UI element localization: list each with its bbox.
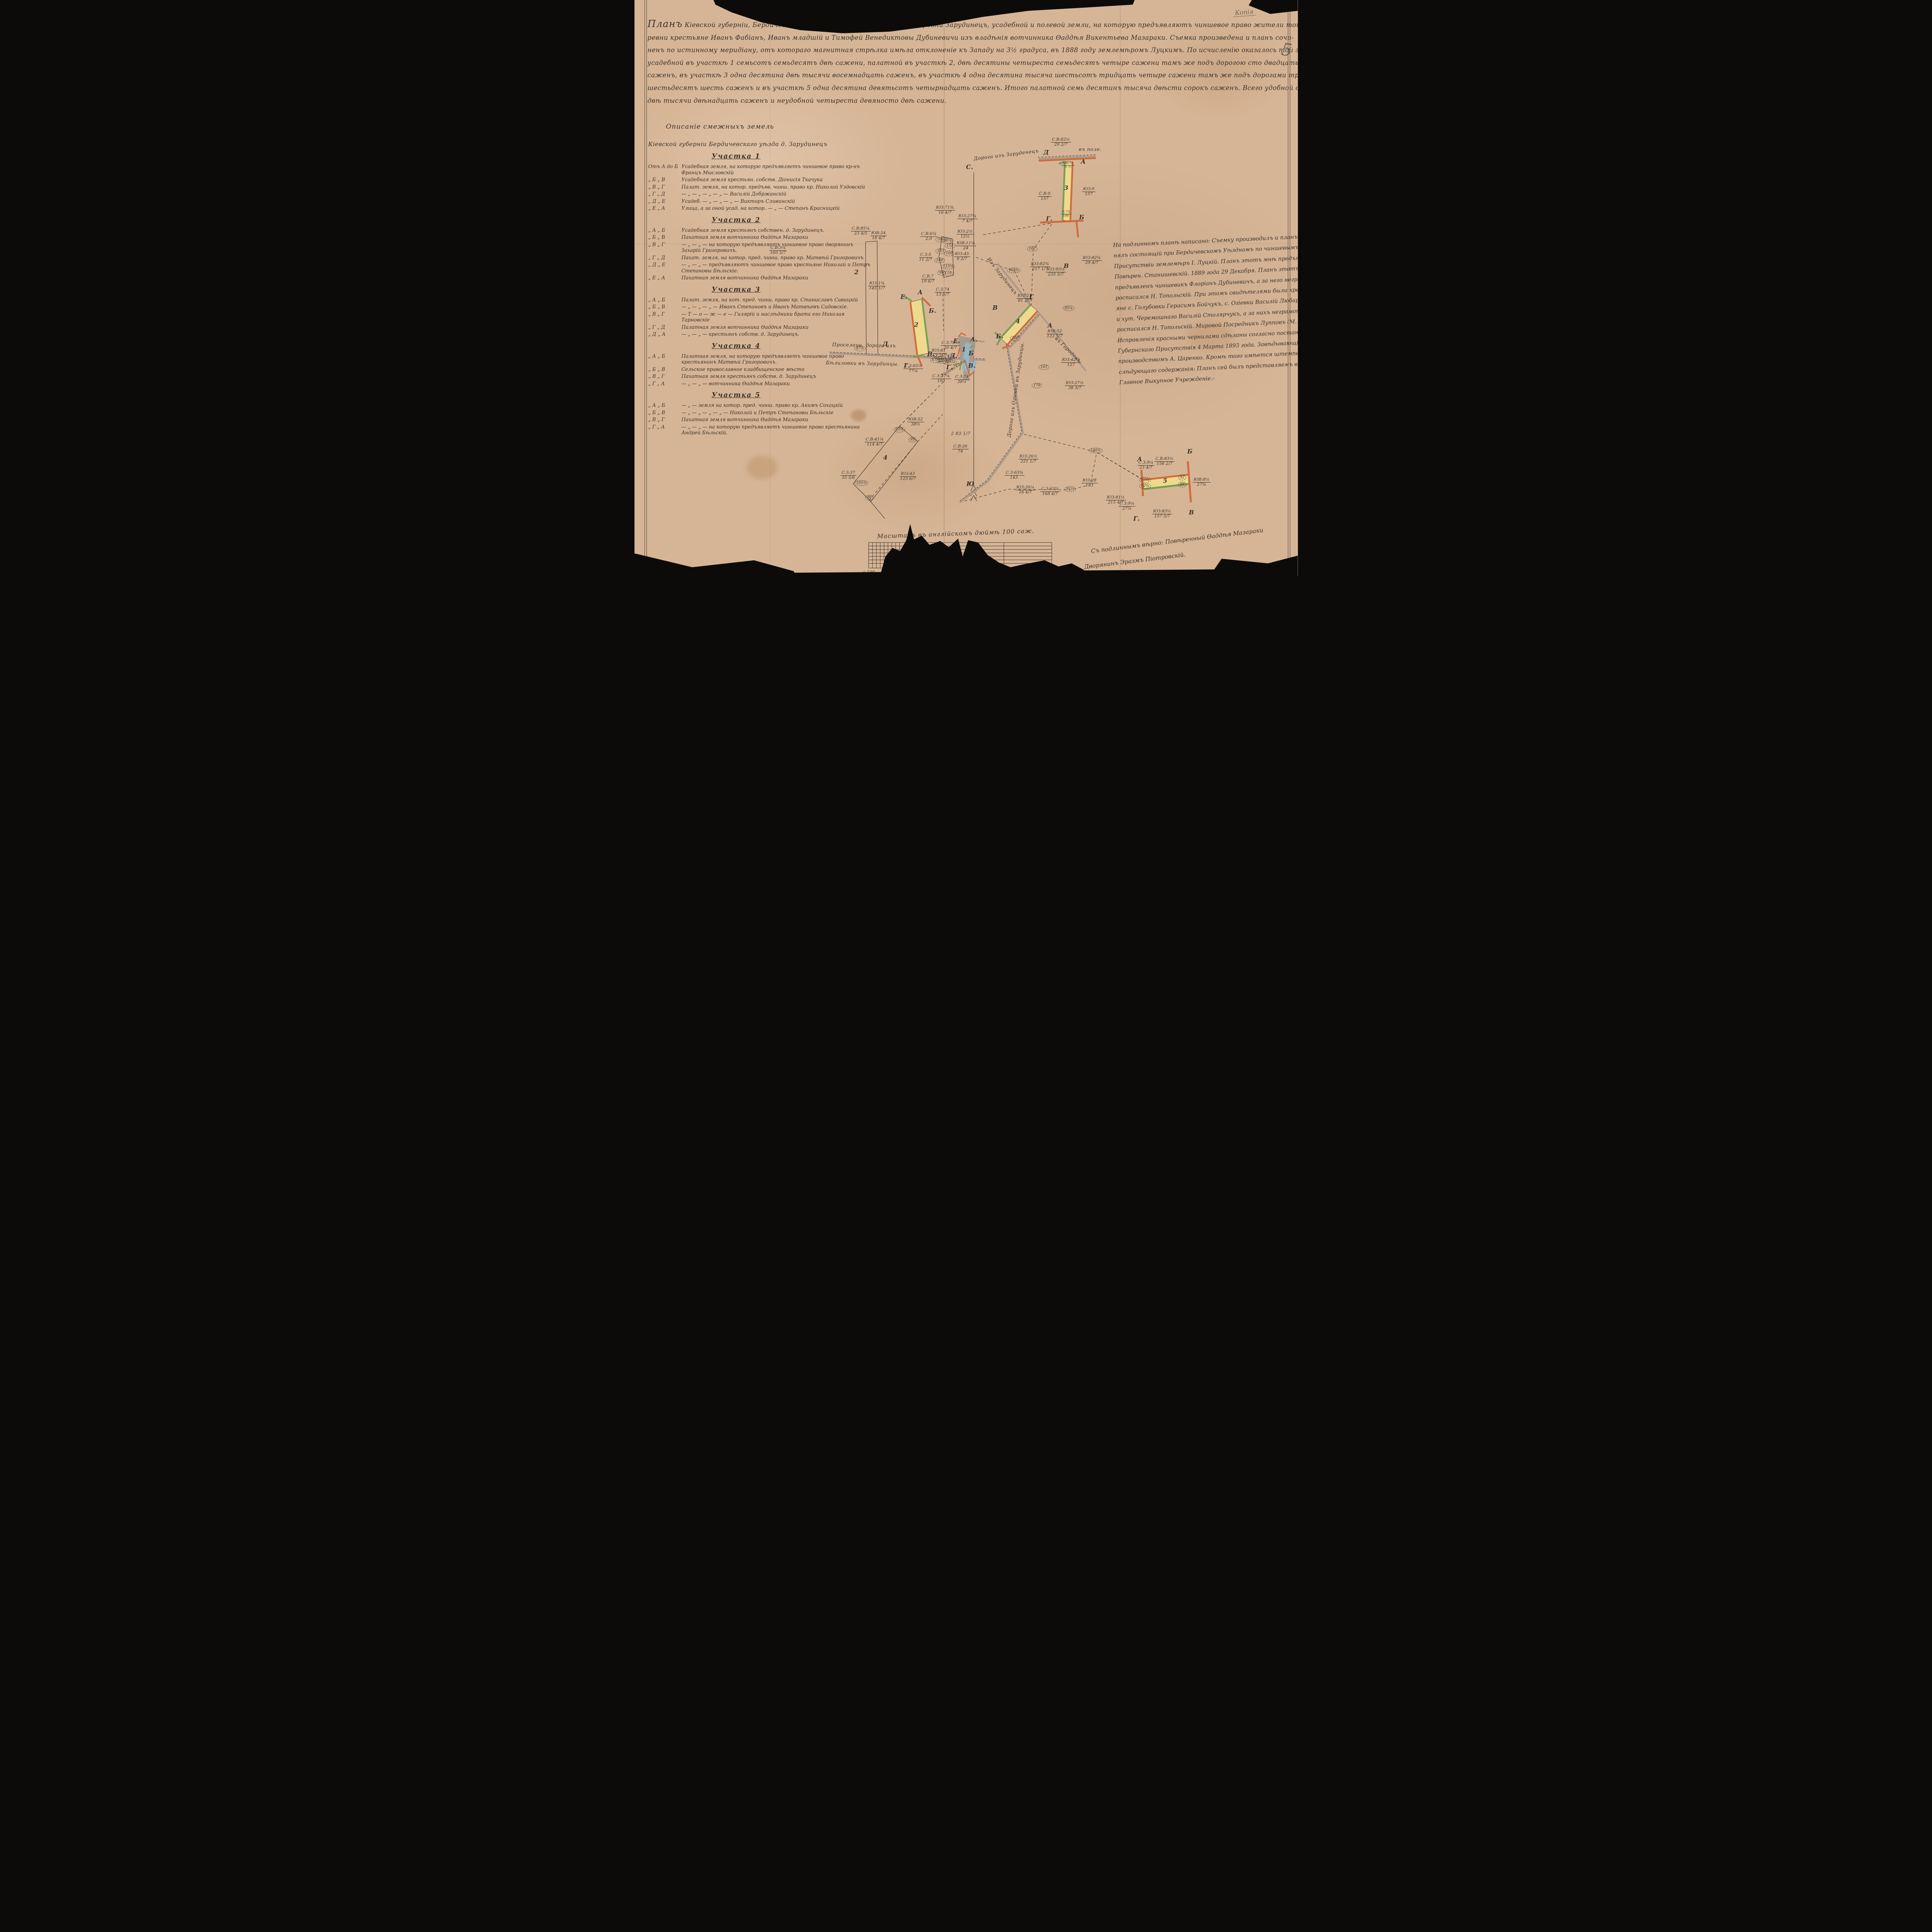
bearing: С.З:27¼ bbox=[931, 374, 951, 379]
bearing: С.З:74 bbox=[954, 375, 970, 380]
distance: 106 bbox=[1061, 214, 1071, 218]
station-number-circled: 155 bbox=[945, 243, 956, 248]
station-number-circled: 166 bbox=[944, 251, 955, 256]
bearing: ЮВ:24 bbox=[870, 231, 887, 236]
corner-letter: Г. bbox=[1133, 515, 1140, 522]
bearing: С.З:9¼ bbox=[1137, 461, 1155, 466]
measurement-label: ЮЗ:1¾145 1/7 bbox=[868, 281, 886, 291]
station-number-circled: 146¾ bbox=[1088, 448, 1103, 453]
corner-letter: Б bbox=[1079, 214, 1085, 221]
bearing: ЮЗ:27½ bbox=[1065, 381, 1085, 386]
distance: 38½ bbox=[954, 380, 970, 384]
traverse-dashed bbox=[1097, 452, 1143, 480]
corner-letter: А bbox=[1048, 322, 1053, 329]
distance: 11 2/7 bbox=[919, 258, 932, 262]
distance: 18 4/7 bbox=[870, 236, 887, 241]
bearing: С.В:3¼ bbox=[769, 246, 787, 251]
road-label: въ поле. bbox=[1079, 146, 1102, 152]
distance: 157 bbox=[1038, 197, 1052, 201]
corner-letter: Е. bbox=[900, 293, 907, 301]
bearing: С.З:74 bbox=[935, 287, 951, 293]
measurement-label: ЮЗ:27¼7 4/7 bbox=[957, 214, 978, 223]
measurement-label: ЮЗ:2181 2/7 bbox=[1016, 294, 1032, 303]
measurement-label: С.З:27¼193 bbox=[931, 374, 951, 383]
measurement-label: С.В:3¼160 5/7 bbox=[769, 246, 787, 255]
bearing: С.В:7 bbox=[921, 274, 935, 279]
bearing: ЮЗ:27¼ bbox=[957, 214, 978, 219]
bearing: С.З:78½ bbox=[940, 341, 960, 346]
distance: 235 5/7 bbox=[1046, 272, 1066, 277]
corner-letter: С. bbox=[966, 163, 973, 171]
corner-letter: В. bbox=[927, 350, 935, 358]
measurement-label: С.З:63¾168 4/7 bbox=[1040, 487, 1060, 496]
distance: 13 5/7 bbox=[935, 293, 951, 297]
distance: ½ ⅓ bbox=[1061, 166, 1074, 169]
station-number-circled: 80¾ bbox=[942, 238, 954, 243]
corner-letter: Ю bbox=[966, 480, 974, 488]
bearing: ЮВ:52 bbox=[1046, 329, 1063, 334]
bearing: С.В:83½ bbox=[1154, 457, 1175, 462]
corner-letter: В bbox=[993, 304, 998, 311]
measurement-label: С.В:41¼114 4/7 bbox=[864, 437, 885, 447]
bearing: С.В:26 bbox=[952, 444, 968, 449]
corner-letter: Б bbox=[969, 350, 974, 357]
bearing: ЮЗ:43 bbox=[900, 472, 916, 477]
station-number-circled: 125¾ bbox=[943, 360, 957, 365]
station-number-circled: 95 bbox=[908, 437, 917, 442]
bearing: ЮЗ:93¼ bbox=[1046, 267, 1066, 272]
bearing: С.З:5 bbox=[919, 253, 932, 258]
station-number-circled: 168¾ bbox=[1007, 268, 1021, 273]
station-number-circled: 93¼ bbox=[893, 427, 905, 432]
measurement-label: С.З:9¼23 4/7 bbox=[1137, 461, 1155, 470]
traverse-dashed bbox=[943, 294, 944, 331]
distance: 7 4/7 bbox=[957, 219, 978, 224]
station-number-circled: 88 bbox=[1178, 482, 1187, 487]
corner-letter: В bbox=[1189, 509, 1194, 516]
distance: 29 4/7 bbox=[1082, 261, 1102, 265]
distance: 74 bbox=[952, 449, 968, 454]
corner-letter: Б. bbox=[996, 333, 1004, 340]
distance: 20 4/7 bbox=[940, 346, 960, 350]
measurement-label: С.З:511 2/7 bbox=[919, 253, 932, 262]
measurement-label: ЮВ:2418 4/7 bbox=[870, 231, 887, 240]
page-number-pencil: 5 bbox=[1280, 39, 1293, 60]
station-number-circled: 92 bbox=[1178, 475, 1187, 480]
measurement-label: С.З:7438½ bbox=[954, 375, 970, 384]
distance: 16 4/7 bbox=[935, 211, 955, 215]
distance: 38 3/7 bbox=[1065, 386, 1085, 391]
measurement-label: ЮЗ:71¾16 4/7 bbox=[935, 206, 955, 215]
station-number-circled: 168 bbox=[934, 258, 945, 263]
station-number-circled: 165 bbox=[1039, 364, 1049, 370]
measurement-label: С.В:83½158 2/7 bbox=[1154, 457, 1175, 466]
measurement-label: С.З:7413 5/7 bbox=[935, 287, 951, 297]
distance: 158 2/7 bbox=[1154, 462, 1175, 466]
road-label: Проселочн. дорога изъ bbox=[832, 342, 896, 349]
distance: 145 1/7 bbox=[868, 286, 886, 291]
distance: 160 5/7 bbox=[769, 251, 787, 255]
bearing: ЮЗ:1¾ bbox=[868, 281, 886, 286]
bearing: С.З:37 bbox=[840, 471, 856, 476]
corner-letter: 3 bbox=[1064, 184, 1068, 192]
measurement-label: ЮЗ:93¼235 5/7 bbox=[1046, 267, 1066, 277]
kopia-pencil-note: Копія bbox=[1232, 8, 1256, 17]
bearing: ЮЗ:21 bbox=[1016, 294, 1032, 299]
corner-letter: Б bbox=[1187, 448, 1193, 455]
measurement-label: ЮЗ:82¾29 4/7 bbox=[1082, 256, 1102, 265]
bearing: С.З:63¾ bbox=[1040, 487, 1060, 492]
survey-map-drawing bbox=[634, 0, 1298, 576]
distance: 16 4/7 bbox=[1015, 490, 1036, 495]
corner-letter: Г. bbox=[904, 362, 910, 369]
distance: 9 2/7 bbox=[954, 257, 970, 262]
road-label: 2 83 1/7 bbox=[951, 431, 971, 436]
distance: 38½ bbox=[907, 422, 924, 427]
measurement-label: ЮЗ:2½12½ bbox=[956, 230, 974, 239]
distance: 77¼ bbox=[903, 369, 923, 374]
bearing: ЮВ:8½ bbox=[1192, 478, 1211, 483]
bearing: С.З:63¾ bbox=[1005, 471, 1024, 476]
corner-letter: 2 bbox=[854, 269, 859, 276]
distance: 221 1/7 bbox=[1018, 459, 1039, 464]
station-number-circled: 179 bbox=[1032, 383, 1043, 388]
bearing: ЮВ:11¼ bbox=[956, 241, 976, 246]
measurement-label: С.З:3735 5/6 bbox=[840, 471, 856, 480]
distance: 215 4/7 bbox=[1105, 500, 1126, 505]
distance: 29 2/7 bbox=[1051, 143, 1071, 147]
measurement-label: С.В:719 6/7 bbox=[921, 274, 935, 284]
bearing: С.В:85¼ bbox=[850, 226, 871, 231]
traverse-dashed bbox=[1024, 434, 1142, 479]
corner-letter: Б. bbox=[929, 307, 937, 315]
measurement-label: ЮЗ:42½127 bbox=[1061, 358, 1081, 367]
measurement-label: ЮЗ:26½221 1/7 bbox=[1018, 454, 1039, 464]
station-number-circled: 91½ bbox=[1064, 486, 1076, 492]
plot4-field-outline bbox=[853, 426, 918, 502]
measurement-label: С.З:78½20 4/7 bbox=[940, 341, 960, 350]
station-number-circled: 85¼ bbox=[1063, 306, 1075, 311]
distance: 27¾ bbox=[1192, 483, 1211, 487]
station-number-circled: 107 bbox=[1010, 336, 1021, 341]
corner-letter: А. bbox=[970, 336, 978, 343]
station-number-circled: 80 bbox=[865, 495, 874, 500]
traverse-dashed bbox=[982, 223, 1050, 235]
measurement-label: ЮЗ:9157 bbox=[1082, 187, 1096, 196]
corner-letter: 1 bbox=[962, 346, 966, 353]
measurement-label: ЮЗ:83½157 5/7 bbox=[1152, 509, 1172, 519]
measurement-label: ЮВ:11¼24 bbox=[956, 241, 976, 250]
corner-letter: Г. bbox=[1046, 215, 1053, 223]
bearing: С.В:41¼ bbox=[864, 437, 885, 442]
bearing: С.В:9 bbox=[1038, 192, 1052, 197]
station-number-circled: 87¼ bbox=[1139, 477, 1151, 483]
corner-letter: В. bbox=[968, 362, 976, 369]
distance: 143. bbox=[1005, 476, 1024, 480]
bearing: ЮЗ:82¾ bbox=[1082, 256, 1102, 261]
distance: 12½ bbox=[956, 235, 974, 239]
distance: 114 4/7 bbox=[864, 442, 885, 447]
measurement-label: ЮВ:52122 5/7 bbox=[1046, 329, 1063, 338]
bearing: С.В:6¾ bbox=[920, 232, 938, 237]
measurement-label: ЮЗ:26¼16 4/7 bbox=[1015, 485, 1036, 495]
distance: 157 5/7 bbox=[1152, 514, 1172, 519]
station-number-circled: 107 bbox=[1027, 246, 1038, 252]
measurement-label: 106:73½ ⅓ bbox=[1061, 162, 1074, 169]
bearing: ЮЗ:28 bbox=[1081, 478, 1097, 483]
bearing: ЮЗ:81½ bbox=[1105, 495, 1126, 500]
corner-letter: 4 bbox=[1016, 318, 1020, 325]
station-number-circled: 123¾ bbox=[941, 264, 955, 269]
bearing: ЮЗ:42½ bbox=[1061, 358, 1081, 363]
bearing: ЮВ:52 bbox=[907, 417, 924, 422]
bearing: ЮЗ:26¼ bbox=[1015, 485, 1036, 490]
measurement-label: ЮЗ:459 2/7 bbox=[954, 252, 970, 261]
bearing: ЮЗ:82¾ bbox=[1030, 262, 1050, 267]
bearing: ЮЗ:9 bbox=[1082, 187, 1096, 192]
measurement-label: С.В:82½29 2/7 bbox=[1051, 138, 1071, 147]
distance: 24 bbox=[956, 246, 976, 251]
distance: 123 6/7 bbox=[900, 477, 916, 481]
distance: 168 4/7 bbox=[1040, 492, 1060, 497]
distance: 193 bbox=[931, 379, 951, 384]
station-number-circled: 101¾ bbox=[854, 480, 869, 486]
measurement-label: ЮВ:8½27¾ bbox=[1192, 478, 1211, 487]
corner-letter: 5 bbox=[1163, 477, 1167, 485]
corner-letter: 2 bbox=[914, 321, 918, 328]
corner-letter: А bbox=[1081, 158, 1086, 165]
bearing: ЮЗ:83½ bbox=[1152, 509, 1172, 514]
distance: 35 5/6 bbox=[840, 476, 856, 480]
bearing: ЮЗ:45 bbox=[954, 252, 970, 257]
distance: 81 2/7 bbox=[1016, 299, 1032, 303]
measurement-label: С.В:85¼23 4/5 bbox=[850, 226, 871, 236]
corner-letter: А bbox=[918, 289, 923, 296]
station-number-circled: 119 bbox=[943, 271, 954, 276]
measurement-label: ЮЗ:27½38 3/7 bbox=[1065, 381, 1085, 390]
corner-letter: Д bbox=[1043, 149, 1049, 156]
measurement-label: ЮЗ:28133 bbox=[1081, 478, 1097, 488]
distance: 127 bbox=[1061, 363, 1081, 367]
distance: 19 6/7 bbox=[921, 279, 935, 284]
measurement-label: ЮЗ:81½215 4/7 bbox=[1105, 495, 1126, 505]
corner-letter: 4 bbox=[883, 454, 888, 461]
bearing: ЮЗ:2½ bbox=[956, 230, 974, 235]
measurement-label: С.В:9157 bbox=[1038, 192, 1052, 201]
measurement-label: ¾ 73106 bbox=[1061, 211, 1071, 218]
measurement-label: С.В:2674 bbox=[952, 444, 968, 454]
bearing: ЮЗ:71¾ bbox=[935, 206, 955, 211]
distance: 23 4/7 bbox=[1137, 466, 1155, 470]
distance: 27¾ bbox=[1118, 507, 1136, 511]
plot4-strip-shape bbox=[995, 305, 1037, 349]
distance: 122 5/7 bbox=[1046, 334, 1063, 339]
distance: 23 4/5 bbox=[850, 231, 871, 236]
bearing: С.В:82½ bbox=[1051, 138, 1071, 143]
scanned-plan-page: Планъ Кіевской губерніи, Бердичевскаго у… bbox=[634, 0, 1298, 576]
bearing: ЮЗ:26½ bbox=[1018, 454, 1039, 459]
measurement-label: ЮВ:5238½ bbox=[907, 417, 924, 427]
station-number-circled: 92¾ bbox=[1139, 483, 1151, 489]
distance: 157 bbox=[1082, 192, 1096, 197]
measurement-label: С.З:63¾143. bbox=[1005, 471, 1024, 480]
distance: 133 bbox=[1081, 483, 1097, 488]
road-stub bbox=[869, 499, 885, 519]
measurement-label: ЮЗ:43123 6/7 bbox=[900, 472, 916, 481]
plot2-north-outline bbox=[866, 241, 878, 355]
